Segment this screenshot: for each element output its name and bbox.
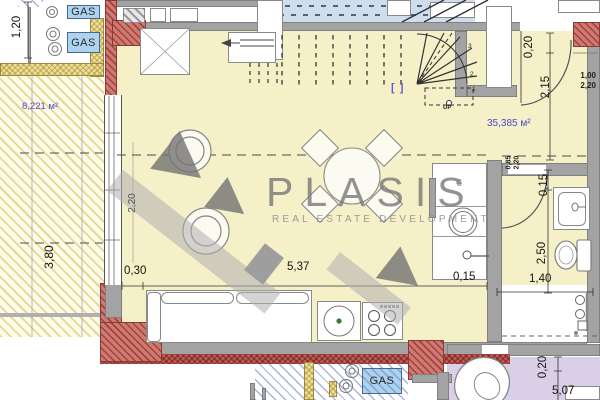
pier-top-right — [573, 22, 600, 47]
stair-tread-2: 2 — [470, 72, 474, 79]
wall-stair-right — [455, 31, 467, 97]
upper-right-box-1 — [430, 2, 475, 18]
watermark-tagline: REAL ESTATE DEVELOPMENT — [272, 215, 490, 225]
corridor-door-frame-1 — [250, 383, 255, 400]
living-area-label: 35,385 м² — [487, 119, 531, 129]
bath-sink-basin — [558, 192, 586, 226]
wall-bath-left — [487, 160, 502, 342]
upper-room-hatched-box — [123, 8, 145, 23]
dim-balcony-length: 3,80 — [43, 242, 55, 272]
corridor-door-frame-2 — [262, 388, 266, 400]
balcony-floor — [0, 75, 104, 337]
gas-label-1: GAS — [71, 6, 96, 18]
dim-hall-width: 2,15 — [541, 74, 553, 100]
stair-tread-1: 1 — [472, 87, 476, 94]
utility-wall-horizontal — [0, 63, 104, 76]
upper-room-box-2 — [170, 8, 198, 22]
stair-up-label: UP — [443, 105, 451, 111]
gas-label-3: GAS — [370, 375, 395, 387]
stair-arrow-box — [228, 32, 276, 63]
shower-floor — [502, 285, 600, 342]
kitchen-column-divider-2 — [433, 236, 486, 237]
hatch-corner-topleft — [18, 0, 43, 7]
gas-meter-box-1: GAS — [67, 5, 100, 19]
euro-mark: € — [456, 178, 462, 189]
dim-sofa-offset: 0,30 — [124, 266, 146, 278]
shaft-small-below — [329, 381, 337, 397]
hall-door-width: 1,00 — [566, 71, 596, 81]
pillar-window-bottom — [105, 282, 122, 318]
hall-door-height: 2,20 — [566, 81, 596, 91]
balcony-area-label: 8,221 м² — [22, 102, 58, 112]
bath-door-width: 0,85 — [506, 146, 514, 180]
upper-room-box-1 — [150, 8, 166, 22]
shaft-strip-below — [304, 362, 314, 400]
floor-plan: PLASIS REAL ESTATE DEVELOPMENT € GAS GAS… — [0, 0, 600, 400]
tiled-room-box — [387, 0, 411, 16]
section-marker: [ ] — [391, 82, 404, 94]
dim-lav-nib: 0,20 — [538, 354, 550, 380]
stair-tread-3: 3 — [468, 44, 472, 51]
dim-kitchen-nib: 0,15 — [453, 272, 475, 284]
watermark-brand: PLASIS — [266, 172, 476, 213]
utility-partition — [28, 0, 31, 63]
hall-door-size: 1,00 2,20 — [566, 71, 596, 90]
dim-hall-nib: 0,20 — [524, 34, 536, 60]
sofa-back-cushion-1 — [161, 292, 234, 304]
stub-lavender — [437, 372, 449, 400]
dim-window-left: 2,20 — [128, 190, 140, 216]
dim-bath-length: 2,50 — [537, 240, 549, 266]
dim-bath-nib: 0,15 — [539, 172, 551, 198]
gas-meter-box-3: GAS — [362, 368, 402, 394]
wall-left-exterior — [105, 0, 117, 97]
stair-closet-box — [140, 28, 190, 75]
entry-door-gap — [520, 22, 573, 31]
balcony-rail — [0, 313, 103, 317]
upper-right-box-2 — [558, 0, 600, 13]
dim-bath-width: 1,40 — [529, 274, 551, 286]
gas-meter-box-2: GAS — [67, 32, 100, 53]
dim-lav-width: 5,07 — [552, 386, 574, 398]
stair-landing-strip-right — [486, 6, 512, 88]
sofa-armrest — [147, 292, 161, 342]
bath-door-height: 2,20 — [513, 146, 521, 180]
dim-util-width: 1,20 — [12, 14, 24, 40]
gas-label-2: GAS — [71, 37, 96, 49]
dim-living-width: 5,37 — [287, 262, 309, 274]
kitchen-sink-cabinet — [317, 301, 361, 341]
bath-door-size: 0,85 2,20 — [506, 146, 521, 180]
